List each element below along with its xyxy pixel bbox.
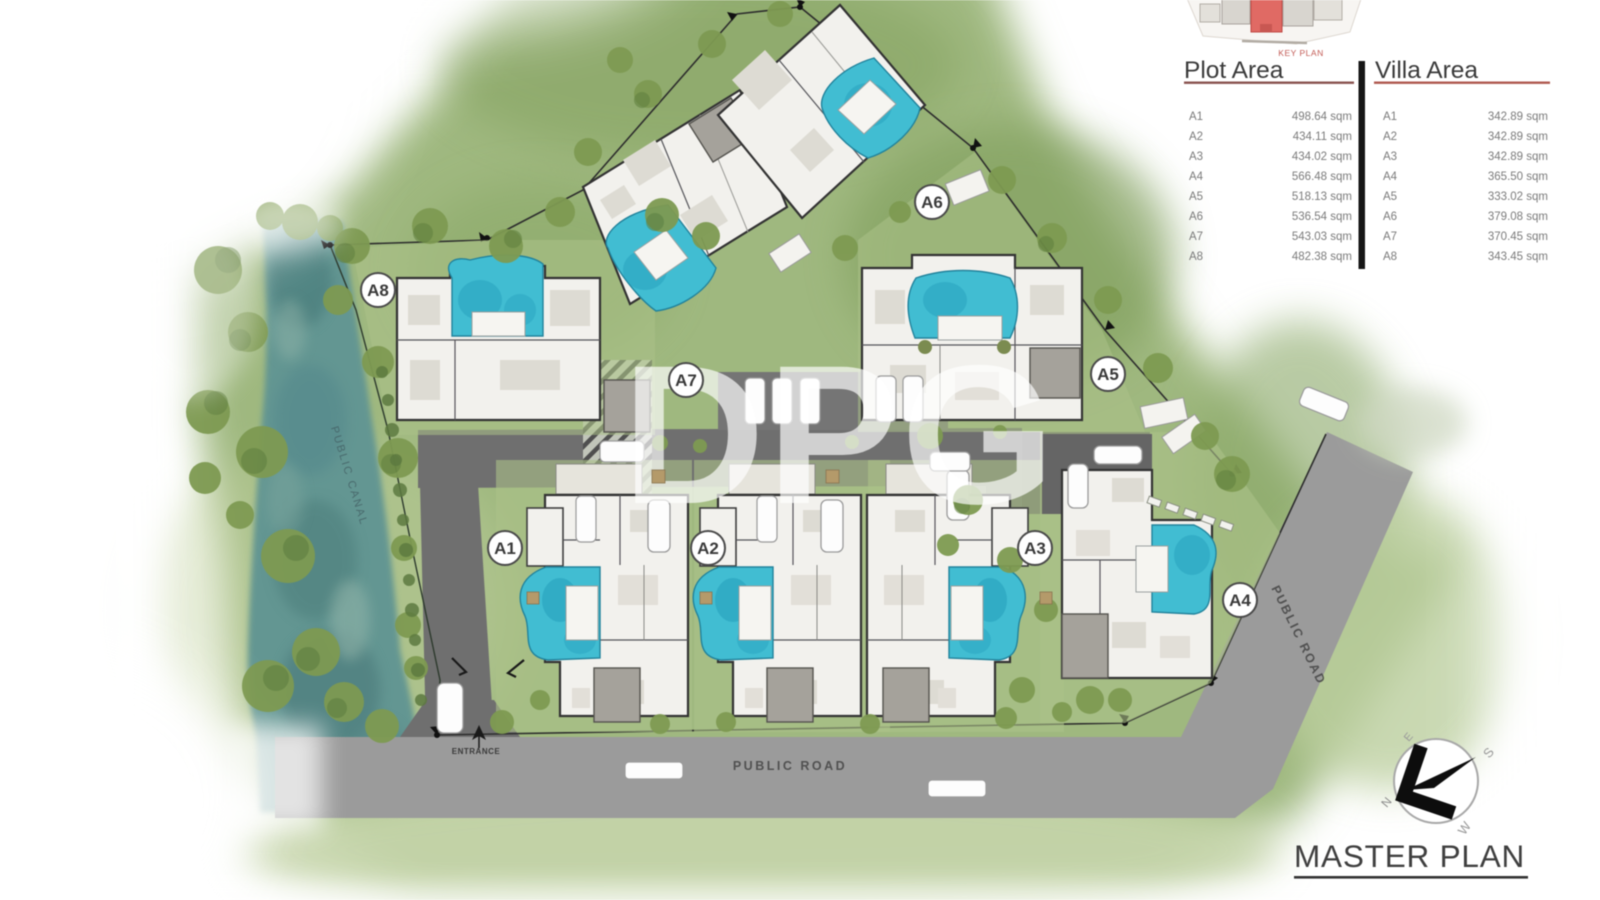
svg-text:518.13 sqm: 518.13 sqm <box>1292 191 1352 203</box>
svg-text:A5: A5 <box>1097 365 1119 384</box>
svg-text:A5: A5 <box>1189 191 1203 203</box>
svg-text:KEY PLAN: KEY PLAN <box>1278 48 1323 58</box>
svg-text:A2: A2 <box>1383 131 1397 143</box>
svg-text:A3: A3 <box>1189 151 1203 163</box>
svg-text:Villa Area: Villa Area <box>1375 57 1478 84</box>
svg-text:A7: A7 <box>675 371 697 390</box>
svg-text:434.11 sqm: 434.11 sqm <box>1293 131 1352 143</box>
svg-text:482.38 sqm: 482.38 sqm <box>1292 251 1352 263</box>
svg-text:A5: A5 <box>1383 191 1397 203</box>
svg-text:A8: A8 <box>367 281 389 300</box>
svg-text:379.08 sqm: 379.08 sqm <box>1488 211 1548 223</box>
svg-text:A1: A1 <box>494 539 516 558</box>
svg-text:A6: A6 <box>921 193 943 212</box>
svg-text:342.89 sqm: 342.89 sqm <box>1488 131 1548 143</box>
svg-text:A4: A4 <box>1189 171 1204 183</box>
svg-text:A1: A1 <box>1189 111 1203 123</box>
svg-text:333.02 sqm: 333.02 sqm <box>1488 191 1548 203</box>
svg-text:536.54 sqm: 536.54 sqm <box>1292 211 1352 223</box>
svg-text:434.02 sqm: 434.02 sqm <box>1292 151 1352 163</box>
svg-text:A7: A7 <box>1189 231 1203 243</box>
svg-text:ENTRANCE: ENTRANCE <box>452 747 501 756</box>
svg-text:343.45 sqm: 343.45 sqm <box>1488 251 1548 263</box>
svg-text:A4: A4 <box>1383 171 1398 183</box>
svg-text:370.45 sqm: 370.45 sqm <box>1488 231 1548 243</box>
svg-text:Plot Area: Plot Area <box>1184 57 1284 84</box>
svg-text:342.89 sqm: 342.89 sqm <box>1488 111 1548 123</box>
svg-text:A1: A1 <box>1383 111 1397 123</box>
svg-text:A6: A6 <box>1189 211 1203 223</box>
svg-text:A3: A3 <box>1024 539 1046 558</box>
svg-text:A3: A3 <box>1383 151 1397 163</box>
svg-text:342.89 sqm: 342.89 sqm <box>1488 151 1548 163</box>
svg-text:PUBLIC ROAD: PUBLIC ROAD <box>733 759 847 773</box>
svg-text:A8: A8 <box>1189 251 1203 263</box>
svg-text:566.48 sqm: 566.48 sqm <box>1292 171 1352 183</box>
svg-text:DPG: DPG <box>622 324 1057 545</box>
svg-text:A7: A7 <box>1383 231 1397 243</box>
svg-text:543.03 sqm: 543.03 sqm <box>1292 231 1352 243</box>
svg-text:A2: A2 <box>1189 131 1203 143</box>
svg-text:365.50 sqm: 365.50 sqm <box>1488 171 1548 183</box>
svg-text:A4: A4 <box>1229 591 1251 610</box>
svg-text:A6: A6 <box>1383 211 1397 223</box>
svg-text:498.64 sqm: 498.64 sqm <box>1292 111 1352 123</box>
svg-text:A8: A8 <box>1383 251 1397 263</box>
svg-text:MASTER PLAN: MASTER PLAN <box>1294 838 1525 874</box>
svg-text:A2: A2 <box>697 539 719 558</box>
